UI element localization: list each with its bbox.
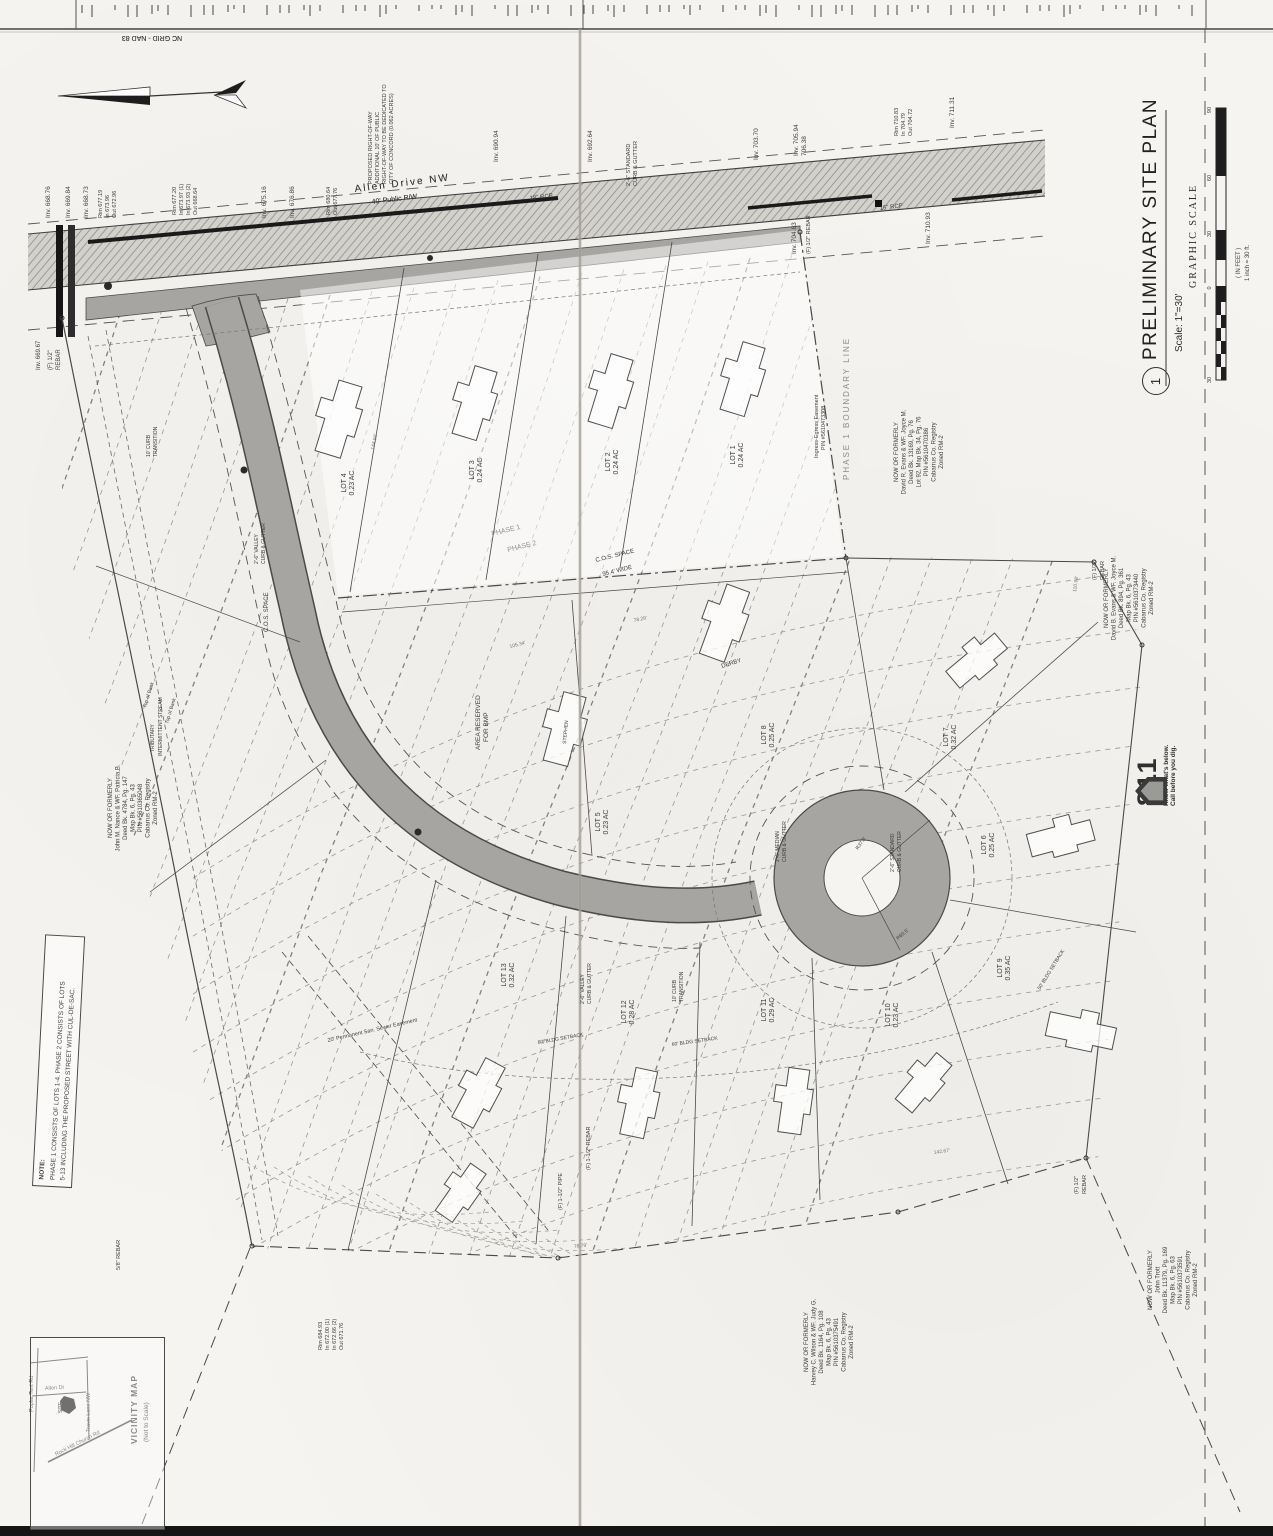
- lot-area: 0.29 AC: [769, 998, 776, 1023]
- lot-label: LOT 13: [501, 963, 508, 986]
- owner-label: Deed Bk. 894, Pg. 361: [1119, 567, 1125, 628]
- contour-line: [190, 1150, 1150, 1460]
- map-label: REBAR: [1082, 1175, 1088, 1194]
- owner-label: Cabarrus Co. Registry: [932, 422, 938, 481]
- lot-label: LOT 5: [595, 812, 602, 831]
- map-label: TRANSITION: [153, 426, 159, 457]
- north-arrow-icon: [58, 80, 246, 108]
- map-label: 110.98': [1072, 576, 1080, 593]
- site-plan-drawing: NC GRID - NAD 83Allen Drive NW40' Public…: [0, 0, 1273, 1536]
- map-label: In 672.66 (2): [332, 1319, 338, 1350]
- lot-area: 0.23 AC: [893, 1003, 900, 1028]
- map-label: (F) 1/2": [1092, 562, 1098, 580]
- lot-label: LOT 2: [605, 452, 612, 471]
- owner-label: Map Bk. 6, Pg. 43: [827, 1317, 833, 1365]
- map-label: 2'-6" VALLEY: [580, 973, 586, 1004]
- house-footprint: [1024, 810, 1097, 863]
- map-label: 78.79': [574, 1243, 588, 1250]
- map-label: Rim 677.20: [172, 187, 178, 215]
- map-label: INTERMITTENT STREAM: [158, 697, 164, 756]
- scan-bottom-edge: [0, 1526, 1273, 1536]
- map-label: In 673.97 (1): [179, 184, 185, 215]
- map-label: 78.29': [633, 615, 647, 624]
- map-label: Inv. 675.16: [261, 186, 268, 218]
- map-label: Rim 680.64: [326, 187, 332, 215]
- map-label: 2'-6" STANDARD: [626, 144, 632, 186]
- contour-line: [190, 976, 1150, 1286]
- map-label: 2'-6" MEDIAN: [775, 831, 781, 862]
- lot-label: LOT 3: [469, 460, 476, 479]
- map-label: 2'-6" VALLEY: [254, 533, 260, 564]
- house-footprint: [941, 625, 1012, 692]
- map-label: CURB & GUTTER: [633, 141, 639, 186]
- owner-label: NOW OR FORMERLY: [1104, 568, 1110, 628]
- map-label: In 673.93 (2): [186, 184, 192, 215]
- lot-area: 0.25 AC: [989, 833, 996, 858]
- sheet-scale: Scale: 1"=30': [1174, 293, 1185, 352]
- owner-label: Deed Bk. 1164, Pg. 108: [819, 1310, 825, 1374]
- map-label: (F) 1/2": [1074, 1176, 1080, 1194]
- owner-label: PIN #5610373591: [1178, 1255, 1184, 1304]
- owner-label: Cabarrus Co. Registry: [1142, 568, 1148, 627]
- contour-line: [512, 1230, 762, 1287]
- map-label: 20' Permanent San. Sewer Easement: [327, 1017, 418, 1044]
- scale-number: 30: [1207, 231, 1213, 237]
- owner-label: Map Bk. 6, Pg. 43: [131, 783, 137, 831]
- map-label: CURB & GUTTER: [261, 523, 267, 564]
- map-label: TRIBUTARY: [150, 723, 156, 752]
- map-label: Out 672.96: [112, 191, 118, 218]
- map-label: Inv. 704.63: [791, 222, 798, 254]
- map-label: ADDITIONAL 10' OF PUBLIC: [375, 112, 381, 184]
- map-label: RIGHT-OF-WAY TO BE DEDICATED TO: [382, 84, 388, 184]
- contour-line: [800, 221, 1170, 1241]
- scanned-site-plan-page: NC GRID - NAD 83Allen Drive NW40' Public…: [0, 0, 1273, 1536]
- lot-area: 0.24 AC: [613, 450, 620, 475]
- cul-de-sac: [750, 766, 974, 990]
- map-label: In 704.79: [901, 113, 907, 136]
- map-label: 2'-6" STANDARD: [890, 833, 896, 872]
- lot-area: 0.24 AC: [477, 458, 484, 483]
- map-label: Rim 684.93: [318, 1322, 324, 1350]
- map-label: 142.67': [933, 1148, 950, 1156]
- map-label: (F) 1-1/2" REBAR: [586, 1126, 592, 1170]
- owner-label: Zoned RM-2: [1193, 1263, 1199, 1297]
- owner-label: Zoned RM-2: [153, 791, 159, 825]
- phase1-block: [300, 230, 843, 596]
- scale-number: 60: [1207, 175, 1213, 181]
- owner-label: PIN #5610375491: [834, 1317, 840, 1366]
- 811-tagline-2: Call before you dig.: [1170, 745, 1177, 806]
- map-label: REBAR: [56, 349, 62, 370]
- contour-line: [190, 1034, 1150, 1344]
- owner-label: Lot 92, Map Bk. 34, Pg. 76: [917, 416, 923, 488]
- lot-label: LOT 9: [997, 958, 1004, 977]
- map-label: 50' BLDG SETBACK: [1037, 948, 1067, 991]
- vicinity-map-box: [30, 1337, 165, 1530]
- owner-label: Zoned RM-2: [849, 1325, 855, 1359]
- owner-label: NOW OR FORMERLY: [804, 1312, 810, 1372]
- map-label: Inv. 711.31: [949, 96, 956, 128]
- lot-label: LOT 6: [981, 835, 988, 854]
- map-label: Out 668.64: [193, 188, 199, 215]
- map-label: 5/8" REBAR: [116, 1240, 122, 1270]
- lot-area: 0.24 AC: [738, 443, 745, 468]
- map-label: (F) 1/2": [48, 350, 54, 370]
- owner-label: Deed Bk. 4784, Pg. 147: [123, 775, 129, 839]
- house-footprint: [1044, 1003, 1119, 1056]
- map-label: 105.34': [509, 640, 526, 650]
- map-label: 60' BLDG SETBACK: [671, 1036, 718, 1048]
- owner-label: Cabarrus Co. Registry: [842, 1312, 848, 1371]
- house-footprint: [429, 1158, 491, 1226]
- contour-line: [0, 306, 204, 1326]
- lot-area: 0.35 AC: [1005, 956, 1012, 981]
- map-label: Inv. 669.84: [65, 186, 72, 218]
- map-label: Inv. 705.94: [793, 124, 800, 156]
- contour-line: [190, 1092, 1150, 1402]
- owner-label: Cabarrus Co. Registry: [146, 778, 152, 837]
- owner-label: NOW OR FORMERLY: [894, 422, 900, 482]
- lot-label: LOT 4: [341, 473, 348, 492]
- map-label: Top of Bank: [142, 681, 156, 708]
- lot-label: LOT 11: [761, 999, 768, 1022]
- owner-label: Map Bk. 6, Pg. 43: [1127, 573, 1133, 621]
- map-label: C.O.S. SPACE: [264, 592, 270, 632]
- scale-note: 1 inch = 30 ft.: [1245, 245, 1251, 281]
- owner-label: Map Bk. 6, Pg. 63: [1171, 1255, 1177, 1303]
- owner-label: Zoned RM-2: [1149, 581, 1155, 615]
- sheet-title: PRELIMINARY SITE PLAN: [1140, 98, 1162, 360]
- culvert: [68, 225, 75, 337]
- lot-area: 0.32 AC: [951, 725, 958, 750]
- map-label: CURB & GUTTER: [782, 821, 788, 862]
- map-label: Ingress-Egress Easement: [814, 394, 820, 458]
- map-label: (F) 1/2" REBAR: [806, 215, 812, 254]
- lot-area: 0.28 AC: [629, 1000, 636, 1025]
- map-label: Inv. 690.94: [493, 130, 500, 162]
- lot-label: LOT 12: [621, 1000, 628, 1023]
- owner-label: Cabarrus Co. Registry: [1186, 1250, 1192, 1309]
- map-label: In 672.00 (1): [325, 1319, 331, 1350]
- owner-label: PIN #5610365048: [138, 783, 144, 832]
- house-footprint: [889, 1046, 956, 1117]
- map-label: Inv. 669.67: [36, 340, 42, 370]
- map-label: PHASE 1 BOUNDARY LINE: [842, 337, 851, 480]
- lot-label: LOT 10: [885, 1003, 892, 1026]
- owner-label: Harvey C. Wilson & WF. Judy G.: [812, 1298, 818, 1385]
- map-label: Inv. 676.86: [289, 186, 296, 218]
- sheet-number-bubble: 1: [1142, 367, 1170, 395]
- lot-label: LOT 8: [761, 725, 768, 744]
- map-label: CURB & GUTTER: [897, 831, 903, 872]
- owner-label: Zoned RM-2: [939, 435, 945, 469]
- map-label: TRANSITION: [679, 971, 685, 1002]
- map-label: In 673.96: [105, 195, 111, 218]
- map-label: Out 677.76: [333, 188, 339, 215]
- map-label: Rim 710.83: [894, 108, 900, 136]
- owner-label: PIN #5610373440: [1134, 573, 1140, 622]
- map-label: Out 704.72: [908, 109, 914, 136]
- owner-label: David B. Evans & WF. Joyce M.: [1112, 555, 1118, 640]
- map-label: FOR BMP: [483, 712, 490, 742]
- scale-number: 0: [1207, 286, 1213, 289]
- scan-edge-fragments: [82, 5, 1192, 17]
- map-label: Out 671.76: [339, 1323, 345, 1350]
- map-label: Top of Bank: [164, 697, 178, 724]
- map-label: CURB & GUTTER: [587, 963, 593, 1004]
- north-arrow-label: NC GRID - NAD 83: [122, 34, 182, 41]
- owner-label: NOW OR FORMERLY: [1148, 1250, 1154, 1310]
- lot-area: 0.25 AC: [769, 723, 776, 748]
- owner-label: John Trott: [1156, 1266, 1162, 1293]
- owner-label: Deed Bk. 11379, Pg. 169: [1163, 1246, 1169, 1313]
- map-label: Inv. 692.64: [587, 130, 594, 162]
- sheet-number: 1: [1148, 377, 1163, 384]
- scale-number: 90: [1207, 107, 1213, 113]
- 811-shield-icon: [1134, 776, 1168, 806]
- owner-label: NOW OR FORMERLY: [108, 778, 114, 838]
- owner-label: John M. Nance & WF. Patricia B.: [116, 764, 122, 851]
- map-label: PROPOSED RIGHT-OF-WAY: [368, 111, 374, 184]
- map-label: 10' CURB: [146, 434, 152, 457]
- owner-label: Deed Bk. 13169, Pg. 76: [909, 419, 915, 483]
- map-label: (F) 1-1/2" PIPE: [558, 1173, 564, 1210]
- house-footprint: [690, 580, 756, 665]
- lot-label: LOT 1: [730, 445, 737, 464]
- map-label: Inv. 710.93: [925, 212, 932, 244]
- map-label: Rim 677.19: [98, 190, 104, 218]
- house-footprint: [770, 1066, 816, 1136]
- lot-area: 0.32 AC: [509, 963, 516, 988]
- house-footprint: [444, 1053, 511, 1132]
- lot-label: LOT 7: [943, 727, 950, 746]
- lot-area: 0.23 AC: [603, 810, 610, 835]
- map-label: 10' CURB: [672, 979, 678, 1002]
- lot-area: 0.23 AC: [349, 471, 356, 496]
- map-label: AREA RESERVED: [475, 695, 482, 750]
- map-label: Inv. 668.73: [83, 186, 90, 218]
- logo-811: 811 Know what's below. Call before you d…: [1134, 745, 1177, 806]
- owner-label: David R. Evans & WF. Joyce M.: [902, 409, 908, 494]
- map-label: CITY OF CONCORD (0.062 ACRES): [389, 93, 395, 184]
- map-label: 706.38: [801, 136, 808, 156]
- graphic-scale-label: GRAPHIC SCALE: [1188, 184, 1199, 288]
- scale-units: ( IN FEET ): [1236, 248, 1242, 278]
- scale-number: 30: [1207, 377, 1213, 383]
- map-label: Inv. 703.70: [753, 128, 760, 160]
- map-label: PIN #5610473308: [821, 406, 827, 450]
- map-label: Inv. 668.76: [45, 186, 52, 218]
- owner-label: PIN #5610470386: [924, 427, 930, 476]
